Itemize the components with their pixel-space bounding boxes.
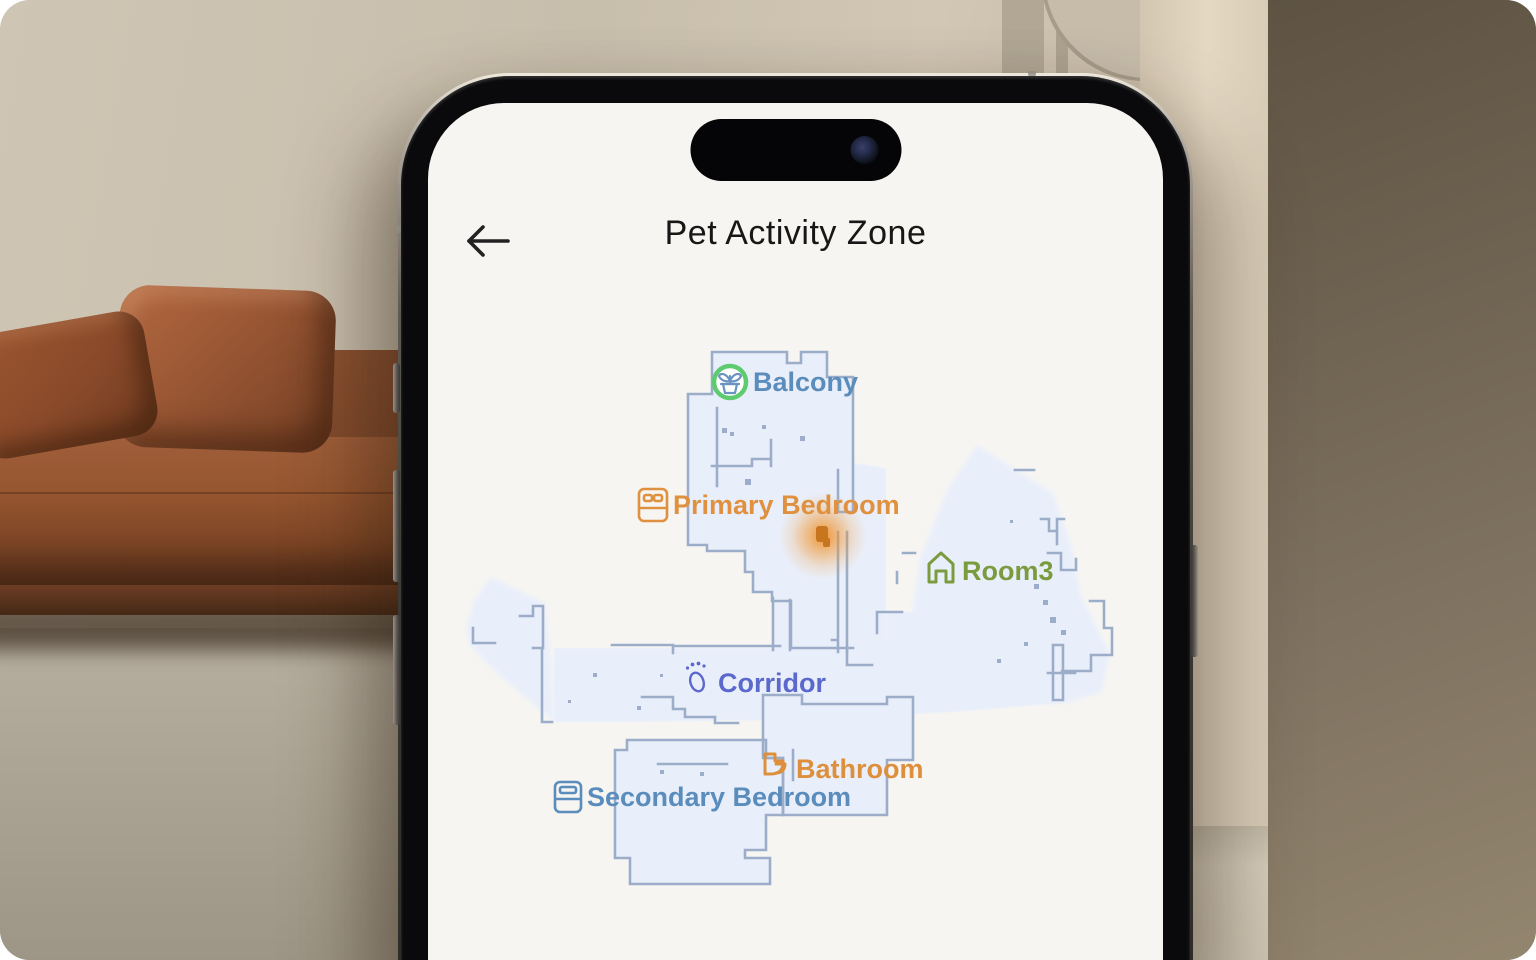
phone-volume-up-button xyxy=(393,470,400,582)
phone-volume-down-button xyxy=(393,615,400,725)
phone-power-button xyxy=(1191,545,1198,657)
sofa-seam xyxy=(0,492,420,494)
phone-screen: Pet Activity Zone xyxy=(428,103,1163,960)
phone-frame: Pet Activity Zone xyxy=(401,76,1190,960)
single-bed-icon xyxy=(555,782,581,812)
floorplan-map[interactable]: Balcony Primary Bedroom xyxy=(428,103,1163,960)
room-label-text: Bathroom xyxy=(796,754,924,784)
room-label-text: Primary Bedroom xyxy=(673,490,900,520)
room-label-text: Corridor xyxy=(718,668,826,698)
phone-action-button xyxy=(393,363,400,413)
room-label-text: Room3 xyxy=(962,556,1054,586)
room-label-balcony[interactable]: Balcony xyxy=(714,366,858,398)
room-label-primary-bedroom[interactable]: Primary Bedroom xyxy=(639,489,900,521)
double-bed-icon xyxy=(639,489,667,521)
sofa-seat xyxy=(0,437,425,589)
sofa-base xyxy=(0,585,425,615)
room-label-text: Secondary Bedroom xyxy=(587,782,851,812)
phone-mockup: Pet Activity Zone xyxy=(398,73,1193,960)
screenshot-card: Pet Activity Zone xyxy=(0,0,1536,960)
room-label-secondary-bedroom[interactable]: Secondary Bedroom xyxy=(555,782,851,812)
dark-wall-panel xyxy=(1268,0,1536,960)
room-label-text: Balcony xyxy=(753,367,858,397)
